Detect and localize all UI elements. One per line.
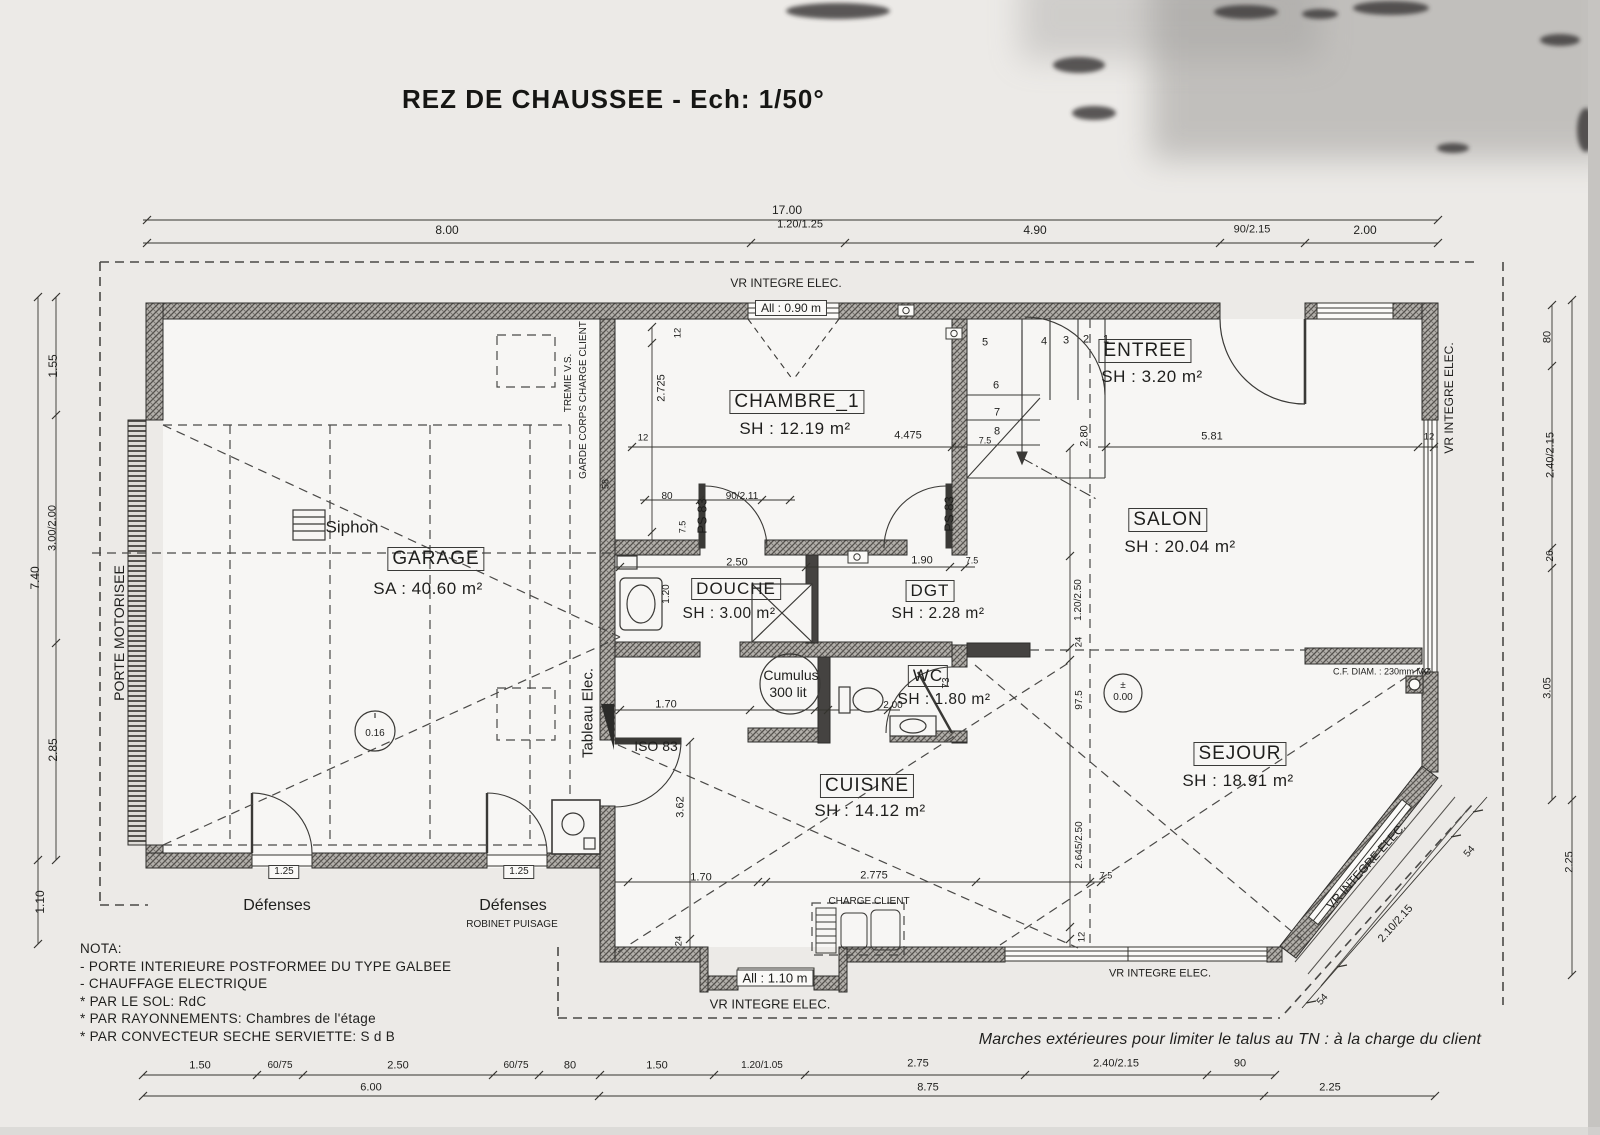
dim-left-1-10: 1.10 — [34, 890, 46, 913]
exterior-steps-note: Marches extérieures pour limiter le talu… — [975, 1031, 1485, 1049]
dim-chambre-2-725: 2.725 — [657, 374, 668, 402]
garde-corps: GARDE CORPS CHARGE CLIENT — [579, 321, 589, 479]
utility-box — [552, 800, 600, 854]
room-name-entree: ENTREE — [1098, 339, 1191, 363]
room-area-sejour: SH : 18.91 m² — [1182, 771, 1293, 791]
room-area-douche: SH : 3.00 m² — [683, 605, 776, 623]
nota-line-4: * PAR RAYONNEMENTS: Chambres de l'étage — [80, 1010, 620, 1028]
floor-plan-page: REZ DE CHAUSSEE - Ech: 1/50° GARAGE SA :… — [0, 0, 1600, 1135]
tremie-vs: TREMIE V.S. — [564, 354, 574, 413]
room-area-wc: SH : 1.80 m² — [898, 691, 991, 709]
vr-integre-bottom-left: VR INTEGRE ELEC. — [710, 998, 831, 1011]
dim-right-26: 26 — [1546, 550, 1556, 561]
room-name-douche: DOUCHE — [691, 578, 781, 600]
room-name-sejour: SEJOUR — [1193, 742, 1286, 766]
dim-dgt-1-90: 1.90 — [911, 556, 932, 567]
room-area-salon: SH : 20.04 m² — [1124, 537, 1235, 557]
bathtub-symbol — [620, 578, 662, 630]
porte-motorisee: PORTE MOTORISEE — [112, 565, 126, 701]
dim-sejour-2-645-2-50: 2.645/2.50 — [1075, 821, 1085, 868]
dim-right-2-25: 2.25 — [1565, 851, 1576, 872]
dim-bot-1-50-b: 1.50 — [646, 1061, 667, 1072]
tableau-elec: Tableau Elec. — [581, 668, 596, 758]
robinet-puisage: ROBINET PUISAGE — [466, 920, 558, 930]
dim-bot-2-40-2-15: 2.40/2.15 — [1093, 1059, 1139, 1070]
cumulus-line1: Cumulus — [763, 668, 818, 682]
room-area-garage: SA : 40.60 m² — [373, 579, 483, 599]
vr-integre-right: VR INTEGRE ELEC. — [1443, 342, 1455, 453]
dim-bot-90: 90 — [1234, 1059, 1246, 1070]
dim-bot-60-75-b: 60/75 — [503, 1061, 528, 1071]
dim-douche-80: 80 — [661, 492, 672, 502]
dim-left-1-55: 1.55 — [47, 354, 59, 377]
dim-cuisine-7-5: 7.5 — [1100, 872, 1113, 881]
dim-chambre-7-5: 7.5 — [979, 437, 992, 446]
nota-block: NOTA: - PORTE INTERIEURE POSTFORMEE DU T… — [80, 940, 620, 1045]
stair-step-3: 3 — [1063, 336, 1069, 347]
dim-chambre-12-left: 12 — [638, 433, 649, 443]
dim-58: 58 — [602, 479, 611, 489]
page-title: REZ DE CHAUSSEE - Ech: 1/50° — [402, 84, 825, 115]
dim-douche-1-20: 1.20 — [662, 584, 672, 603]
dim-wc-2-00: 2.00 — [883, 701, 902, 711]
dim-douche-2-50: 2.50 — [726, 558, 747, 569]
dim-cumulus-1-70: 1.70 — [655, 700, 676, 711]
siphon-symbol — [293, 510, 325, 540]
dim-bot-1-20-1-05: 1.20/1.05 — [741, 1061, 783, 1071]
toilet-symbol — [839, 687, 883, 713]
dim-porte-90-2-11: 90/2.11 — [726, 492, 759, 502]
siphon-label: Siphon — [326, 519, 379, 536]
dim-bot-2-50: 2.50 — [387, 1061, 408, 1072]
stair-step-8: 8 — [994, 427, 1000, 438]
dim-cuisine-24: 24 — [674, 936, 684, 947]
dim-top-90-2-15: 90/2.15 — [1234, 225, 1271, 236]
dim-left-7-40: 7.40 — [29, 566, 41, 589]
dim-chambre-4-475: 4.475 — [894, 431, 922, 442]
dim-hall-1-20-2-50: 1.20/2.50 — [1074, 579, 1084, 621]
dim-douche-7-5: 7.5 — [679, 521, 688, 534]
dim-right-2-40-2-15: 2.40/2.15 — [1546, 432, 1557, 478]
level-0-16: 0.16 — [365, 729, 384, 739]
dim-right-80: 80 — [1543, 331, 1554, 343]
room-name-salon: SALON — [1128, 508, 1207, 532]
dim-chambre-12-top: 12 — [673, 328, 683, 339]
stair-step-2: 2 — [1083, 335, 1089, 346]
room-name-garage: GARAGE — [387, 547, 484, 571]
dim-salon-5-81: 5.81 — [1201, 432, 1222, 443]
stair-step-1: 1 — [1103, 335, 1109, 346]
wc-sink-symbol — [890, 716, 936, 736]
dim-bot-8-75: 8.75 — [917, 1083, 938, 1094]
defenses-right: Défenses — [479, 898, 547, 914]
stair-step-7: 7 — [994, 408, 1000, 419]
stair-step-6: 6 — [993, 381, 999, 392]
level-0-00: 0.00 — [1113, 693, 1132, 703]
ps-83-right: PS 83 — [943, 496, 956, 531]
charge-client: CHARGE CLIENT — [828, 897, 909, 907]
nota-line-3: * PAR LE SOL: RdC — [80, 993, 620, 1011]
dim-left-3-00-2-00: 3.00/2.00 — [48, 505, 59, 551]
defense-dim-left: 1.25 — [268, 865, 299, 879]
dim-bot-6-00: 6.00 — [360, 1083, 381, 1094]
room-name-dgt: DGT — [906, 580, 955, 602]
defense-dim-right: 1.25 — [503, 865, 534, 879]
cf-vent-symbol — [1406, 676, 1423, 693]
allege-1-10: All : 1.10 m — [736, 970, 813, 987]
room-area-dgt: SH : 2.28 m² — [892, 605, 985, 623]
dim-bot-2-75: 2.75 — [907, 1059, 928, 1070]
stair-step-4: 4 — [1041, 337, 1047, 348]
room-name-chambre1: CHAMBRE_1 — [729, 390, 864, 414]
ps-83-left: PS 83 — [696, 498, 709, 533]
nota-heading: NOTA: — [80, 940, 620, 958]
dim-right-3-05: 3.05 — [1543, 677, 1554, 698]
dim-top-1-20-1-25: 1.20/1.25 — [777, 220, 823, 231]
dim-hall-24: 24 — [1074, 637, 1084, 648]
dim-dgt-7-5: 7.5 — [966, 557, 979, 566]
dim-bot-1-50-a: 1.50 — [189, 1061, 210, 1072]
room-area-cuisine: SH : 14.12 m² — [814, 801, 925, 821]
vr-integre-bottom-right: VR INTEGRE ELEC. — [1109, 969, 1211, 980]
nota-line-5: * PAR CONVECTEUR SECHE SERVIETTE: S d B — [80, 1028, 620, 1046]
level-plus-minus: ± — [1120, 681, 1126, 691]
dim-top-4-90: 4.90 — [1023, 224, 1046, 236]
allege-0-90: All : 0.90 m — [755, 300, 827, 316]
dim-bot-2-25: 2.25 — [1319, 1083, 1340, 1094]
defenses-left: Défenses — [243, 898, 311, 914]
dim-bot-60-75-a: 60/75 — [267, 1061, 292, 1071]
dim-sejour-97-5: 97.5 — [1075, 690, 1085, 709]
dim-bot-80: 80 — [564, 1061, 576, 1072]
dim-cuisine-1-70: 1.70 — [690, 873, 711, 884]
dim-top-total: 17.00 — [772, 204, 802, 216]
nota-line-2: - CHAUFFAGE ELECTRIQUE — [80, 975, 620, 993]
vr-integre-top: VR INTEGRE ELEC. — [730, 277, 841, 289]
cf-diam: C.F. DIAM. : 230mm MØ — [1333, 668, 1431, 677]
nota-line-1: - PORTE INTERIEURE POSTFORMEE DU TYPE GA… — [80, 958, 620, 976]
room-area-entree: SH : 3.20 m² — [1101, 367, 1202, 387]
dim-top-2-00: 2.00 — [1353, 224, 1376, 236]
cumulus-line2: 300 lit — [769, 685, 806, 699]
dim-sejour-12: 12 — [1077, 932, 1087, 943]
iso-83: ISO 83 — [634, 739, 678, 753]
dim-escalier-2-80: 2.80 — [1080, 425, 1091, 446]
dim-wc-73: 73 — [942, 677, 952, 688]
dim-top-8-00: 8.00 — [435, 224, 458, 236]
dim-left-2-85: 2.85 — [47, 738, 59, 761]
stair-step-5: 5 — [982, 338, 988, 349]
room-name-cuisine: CUISINE — [820, 774, 914, 798]
dim-cuisine-2-775: 2.775 — [860, 871, 888, 882]
room-area-chambre1: SH : 12.19 m² — [739, 419, 850, 439]
dim-salon-12: 12 — [1424, 432, 1435, 442]
dim-cuisine-3-62: 3.62 — [676, 796, 687, 817]
